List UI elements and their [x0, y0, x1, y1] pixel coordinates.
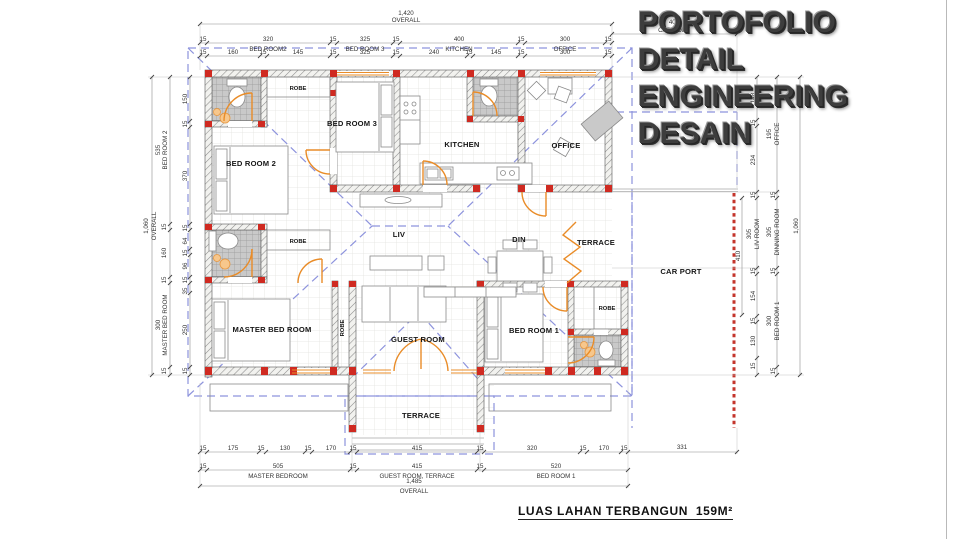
dim-label: 15 — [477, 463, 484, 470]
dim-label: 15 — [161, 223, 168, 230]
dim-label: 305 — [766, 226, 773, 237]
dim-label: 234 — [750, 154, 757, 165]
dim-label: 15 — [750, 317, 757, 324]
dim-label: 15 — [161, 367, 168, 374]
room-label-kitchen: KITCHEN — [444, 140, 479, 149]
room-label-robe-bed1: ROBE — [599, 306, 616, 312]
dim-label: 15 — [605, 49, 612, 56]
dim-label: OVERALL — [151, 211, 158, 240]
room-label-robe-top: ROBE — [290, 86, 307, 92]
dim-label: 520 — [551, 463, 562, 470]
room-label-terrace-side: TERRACE — [577, 238, 615, 247]
dim-label: 160 — [228, 49, 239, 56]
dim-label: 15 — [518, 49, 525, 56]
dim-label: 505 — [273, 463, 284, 470]
dim-label: 15 — [182, 249, 189, 256]
dim-room-label: BED ROOM 1 — [537, 473, 576, 480]
dim-label: 15 — [330, 49, 337, 56]
dim-label: 15 — [200, 49, 207, 56]
dim-label: 15 — [393, 36, 400, 43]
dim-label: 15 — [770, 191, 777, 198]
dim-label: 331 — [677, 444, 688, 451]
dim-label: 300 — [155, 319, 162, 330]
dim-label: 15 — [350, 463, 357, 470]
dim-label: 300 — [766, 315, 773, 326]
dim-label: 535 — [155, 144, 162, 155]
dim-label: 15 — [580, 445, 587, 452]
room-label-office: OFFICE — [551, 141, 580, 150]
room-label-robe-mid: ROBE — [290, 239, 307, 245]
dim-label: 1,420 — [398, 10, 414, 17]
dim-label: 170 — [599, 445, 610, 452]
room-label-bed-room-1: BED ROOM 1 — [509, 326, 560, 335]
caption-luas-lahan: LUAS LAHAN TERBANGUN 159M² — [518, 504, 733, 520]
dim-label: 15 — [770, 367, 777, 374]
room-label-din: DIN — [512, 235, 526, 244]
dim-label: 15 — [750, 267, 757, 274]
portfolio-page: 1,420 OVERALL 15 320 15 325 15 400 15 30… — [0, 0, 960, 539]
dim-label: 240 — [429, 49, 440, 56]
dim-label: 15 — [260, 49, 267, 56]
dim-label: 130 — [280, 445, 291, 452]
dim-label: 15 — [182, 224, 189, 231]
dimensions-bottom: 15 175 15 130 15 170 15 415 15 320 15 17… — [200, 444, 688, 495]
room-label-bed-room-3: BED ROOM 3 — [327, 119, 377, 128]
dimensions-top: 1,420 OVERALL 15 320 15 325 15 400 15 30… — [200, 10, 691, 56]
dim-label: OVERALL — [392, 17, 421, 24]
dim-room-label: DINNING ROOM — [774, 208, 781, 255]
dim-label: 96 — [182, 262, 189, 269]
dim-label: 15 — [750, 362, 757, 369]
dim-room-label: LIV ROOM — [754, 219, 761, 249]
room-label-terrace-front: TERRACE — [402, 411, 440, 420]
title-line-1: PORTOFOLIO — [638, 4, 948, 41]
dim-label: 15 — [477, 445, 484, 452]
dim-label: 175 — [228, 445, 239, 452]
dim-label: 15 — [393, 49, 400, 56]
dim-label: 15 — [200, 463, 207, 470]
page-edge-line — [946, 0, 947, 539]
dim-label: 15 — [770, 267, 777, 274]
dim-room-label: BED ROOM 2 — [162, 130, 169, 169]
dim-label: 415 — [412, 463, 423, 470]
dim-label: 1,060 — [143, 218, 150, 234]
room-label-car-port: CAR PORT — [660, 267, 701, 276]
dim-label: 145 — [293, 49, 304, 56]
dim-label: 320 — [527, 445, 538, 452]
room-label-liv: LIV — [393, 230, 406, 239]
room-label-robe-guest: ROBE — [340, 319, 346, 336]
dim-room-label: BED ROOM 1 — [774, 301, 781, 340]
dim-label: 305 — [746, 228, 753, 239]
dim-label: 325 — [360, 36, 371, 43]
dim-label: 64 — [182, 237, 189, 244]
dim-label: 325 — [360, 49, 371, 56]
room-label-bed-room-2: BED ROOM 2 — [226, 159, 276, 168]
dim-label: 250 — [182, 324, 189, 335]
dim-label: 300 — [560, 49, 571, 56]
dim-label: 15 — [200, 445, 207, 452]
title-line-2: DETAIL ENGINEERING — [638, 41, 948, 115]
dim-label: 35 — [182, 287, 189, 294]
dim-label: 1,485 — [406, 478, 422, 485]
title-line-3: DESAIN — [638, 115, 948, 152]
dim-room-label: BED ROOM2 — [249, 46, 287, 53]
dim-label: 154 — [750, 290, 757, 301]
dim-label: 145 — [491, 49, 502, 56]
dim-label: 1,060 — [793, 218, 800, 234]
room-label-guest-room: GUEST ROOM — [391, 335, 445, 344]
dim-label: 160 — [161, 247, 168, 258]
dim-label: 15 — [750, 191, 757, 198]
dim-room-label: MASTER BEDROOM — [248, 473, 307, 480]
dim-label: 400 — [454, 36, 465, 43]
dim-label: 15 — [258, 445, 265, 452]
dim-label: 300 — [560, 36, 571, 43]
dim-label: 410 — [735, 250, 742, 261]
dim-label: 15 — [350, 445, 357, 452]
dim-label: 15 — [182, 367, 189, 374]
dim-label: 150 — [182, 93, 189, 104]
dim-label: 320 — [263, 36, 274, 43]
dim-label: OVERALL — [400, 488, 429, 495]
dim-label: 15 — [182, 276, 189, 283]
dim-label: 15 — [621, 445, 628, 452]
room-label-master-bed-room: MASTER BED ROOM — [233, 325, 312, 334]
dim-label: 415 — [412, 445, 423, 452]
dim-label: 170 — [326, 445, 337, 452]
dim-room-label: MASTER BED ROOM — [162, 294, 169, 355]
dim-label: 130 — [750, 335, 757, 346]
dim-label: 15 — [605, 36, 612, 43]
title-block: PORTOFOLIO DETAIL ENGINEERING DESAIN — [638, 4, 948, 152]
dim-label: 15 — [305, 445, 312, 452]
dimensions-left: 1,060 OVERALL 535 BED ROOM 2 15 160 15 3… — [143, 93, 189, 374]
dim-label: 15 — [518, 36, 525, 43]
dim-label: 15 — [200, 36, 207, 43]
dim-label: 15 — [161, 276, 168, 283]
dim-label: 15 — [466, 49, 473, 56]
dim-label: 15 — [182, 120, 189, 127]
dim-label: 15 — [330, 36, 337, 43]
dim-label: 370 — [182, 170, 189, 181]
